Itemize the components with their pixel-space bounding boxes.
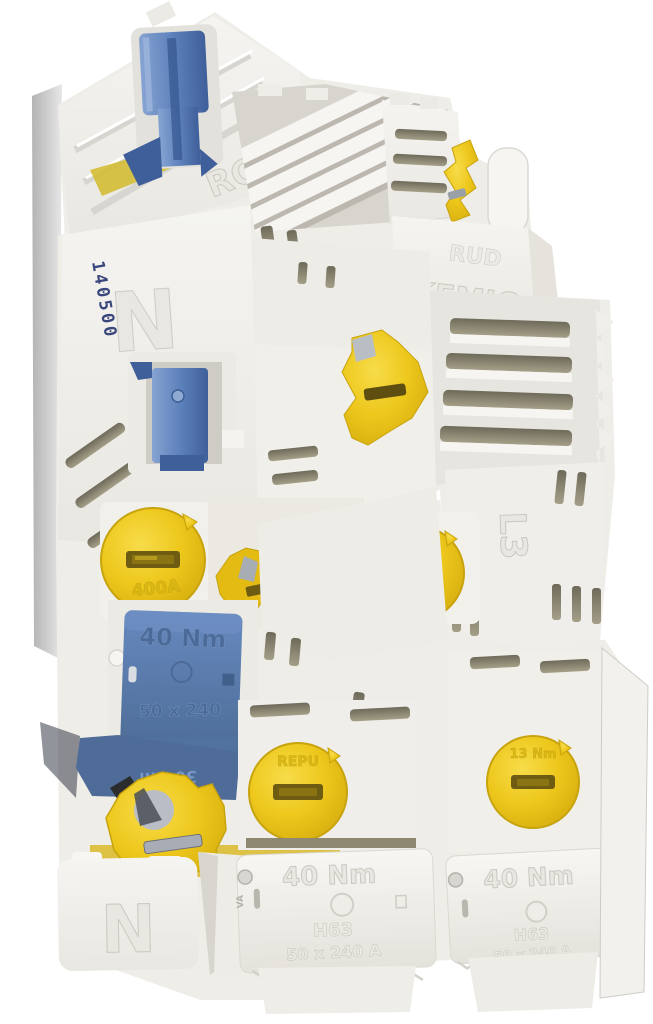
cap-d-text: REPU	[277, 754, 319, 770]
terminal-cover-middle: 40 Nm H63 50 x 240 A VA	[234, 849, 436, 987]
embossed-n-bottom: N	[100, 891, 157, 969]
photo-canvas: RCB RUD KEMIC	[0, 0, 653, 1024]
blue-cover-section-label: 50 x 240	[139, 700, 221, 721]
right-cover-torque-label: 40 Nm	[483, 861, 575, 895]
n-plate: N	[57, 857, 199, 971]
yellow-screw-cap-e: 13 Nm	[487, 736, 579, 828]
blue-cover-torque-label: 40 Nm	[139, 623, 227, 654]
metal-strip	[246, 838, 416, 848]
right-pedestal	[468, 952, 598, 1012]
mid-cover-torque-label: 40 Nm	[282, 860, 377, 893]
phase-l3-label: L3	[491, 511, 534, 560]
fuse-switch-assembly-photo: RCB RUD KEMIC	[0, 0, 653, 1024]
cap-e-torque-label: 13 Nm	[509, 747, 556, 762]
mid-pedestal	[258, 966, 416, 1014]
white-pin-left	[109, 650, 125, 666]
fuse-rail	[430, 290, 614, 485]
blue-tab-unit	[128, 352, 244, 474]
right-cover-size-label: H63	[513, 924, 550, 945]
va-code-label: VA	[236, 895, 246, 909]
mid-cover-size-label: H63	[313, 919, 354, 941]
right-edge-plate	[600, 648, 648, 998]
yellow-screw-cap-a: 400A	[101, 508, 205, 612]
yellow-screw-cap-d: REPU	[249, 743, 347, 841]
rounded-cover-tab	[488, 148, 528, 234]
